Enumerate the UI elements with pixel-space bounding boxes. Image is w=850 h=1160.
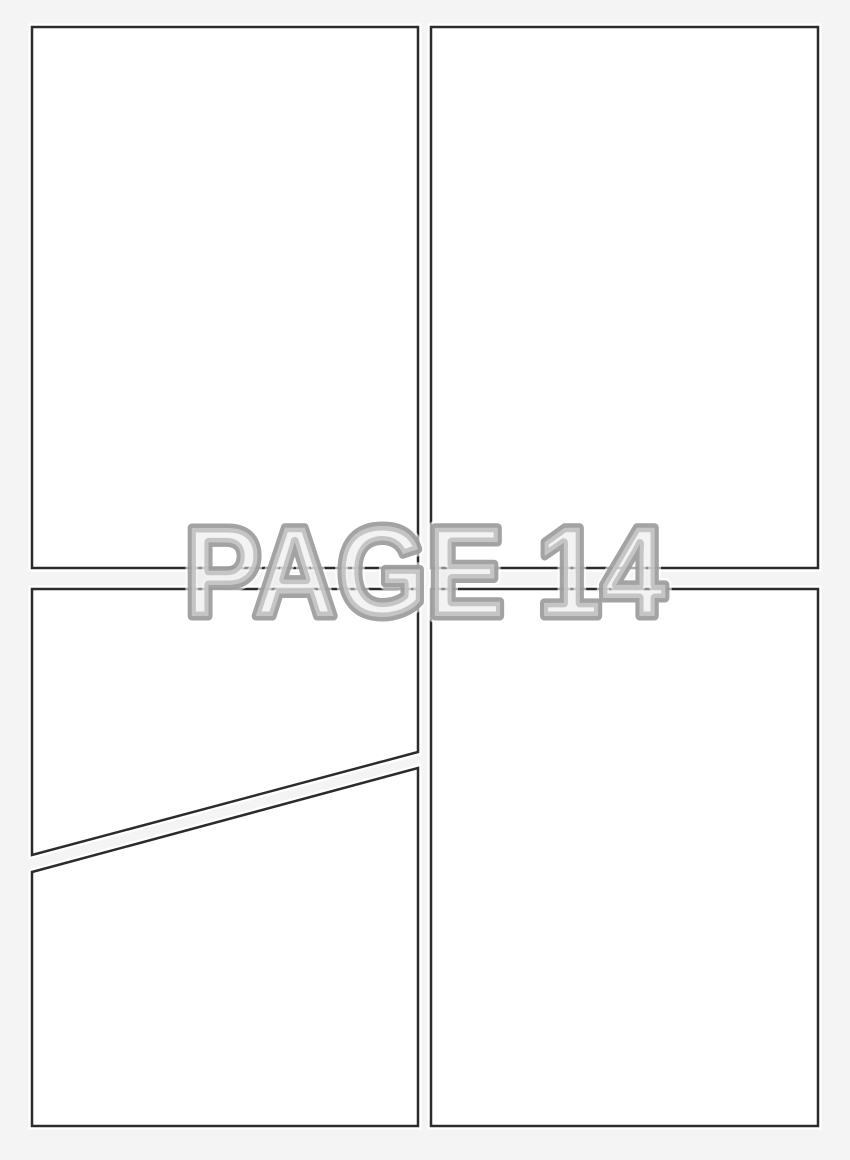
comic-page-svg: PAGE 14 PAGE 14 bbox=[0, 0, 850, 1160]
panel-top-right bbox=[431, 27, 818, 568]
page-label-group: PAGE 14 PAGE 14 bbox=[184, 501, 666, 644]
page-label: PAGE 14 bbox=[184, 501, 666, 644]
panel-top-left bbox=[32, 27, 418, 568]
panel-bottom-right bbox=[431, 589, 818, 1126]
page-background: { "page": { "label": "PAGE 14", "backgro… bbox=[0, 0, 850, 1160]
comic-template-stage: PAGE 14 PAGE 14 bbox=[0, 0, 850, 1160]
